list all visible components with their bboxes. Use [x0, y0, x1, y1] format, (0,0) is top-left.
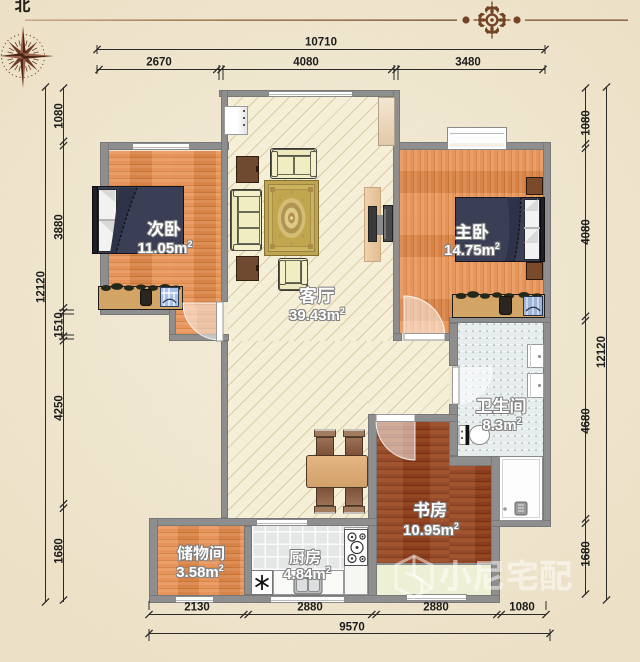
svg-text:12120: 12120 — [596, 336, 608, 368]
svg-text:4680: 4680 — [581, 408, 593, 434]
svg-text:1080: 1080 — [54, 103, 66, 129]
svg-text:2670: 2670 — [146, 57, 172, 69]
svg-text:2130: 2130 — [184, 602, 210, 614]
svg-text:1680: 1680 — [581, 541, 593, 567]
svg-text:1680: 1680 — [54, 538, 66, 564]
svg-text:9570: 9570 — [339, 622, 365, 634]
svg-text:4250: 4250 — [54, 395, 66, 421]
svg-text:3880: 3880 — [54, 214, 66, 240]
svg-text:4080: 4080 — [581, 219, 593, 245]
svg-text:1080: 1080 — [509, 602, 535, 614]
svg-text:1510: 1510 — [54, 312, 66, 338]
svg-text:4080: 4080 — [293, 57, 319, 69]
svg-text:12120: 12120 — [36, 271, 48, 303]
svg-text:10710: 10710 — [305, 37, 337, 49]
svg-text:1080: 1080 — [581, 110, 593, 136]
svg-text:2880: 2880 — [423, 602, 449, 614]
svg-text:2880: 2880 — [297, 602, 323, 614]
svg-text:3480: 3480 — [455, 57, 481, 69]
